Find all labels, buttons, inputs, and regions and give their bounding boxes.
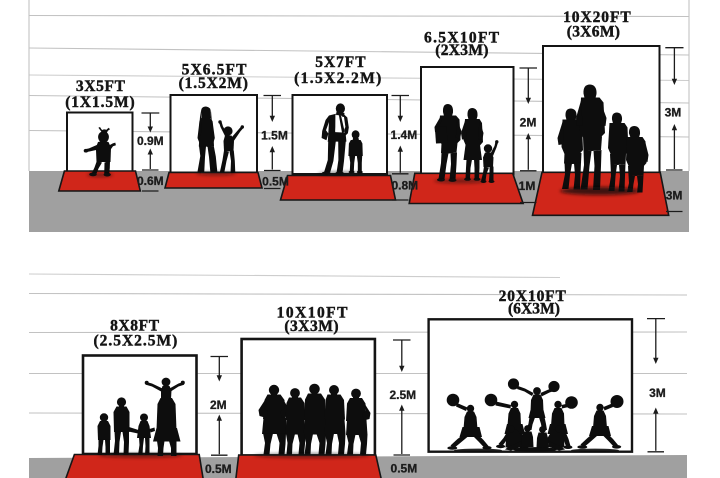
svg-text:1.4M: 1.4M — [391, 128, 418, 142]
svg-text:(3X6M): (3X6M) — [567, 23, 620, 40]
svg-text:2.5M: 2.5M — [389, 388, 416, 402]
svg-text:3M: 3M — [665, 106, 682, 120]
svg-text:0.5M: 0.5M — [205, 462, 232, 476]
svg-text:2M: 2M — [210, 398, 227, 412]
svg-text:1.5M: 1.5M — [261, 129, 288, 143]
svg-text:(1.5X2M): (1.5X2M) — [179, 75, 249, 92]
svg-text:0.5M: 0.5M — [391, 461, 418, 475]
svg-text:0.6M: 0.6M — [137, 174, 164, 188]
svg-text:(3X3M): (3X3M) — [284, 318, 339, 335]
svg-text:0.8M: 0.8M — [391, 179, 418, 193]
svg-text:(6X3M): (6X3M) — [508, 300, 560, 317]
svg-text:3M: 3M — [666, 189, 683, 203]
svg-text:(2.5X2.5M): (2.5X2.5M) — [94, 333, 179, 350]
svg-text:1M: 1M — [519, 179, 536, 193]
svg-text:(2X3M): (2X3M) — [435, 42, 488, 59]
svg-text:5X7FT: 5X7FT — [315, 54, 366, 71]
svg-text:0.5M: 0.5M — [262, 174, 289, 188]
svg-text:3M: 3M — [649, 386, 666, 400]
svg-text:(1X1.5M): (1X1.5M) — [65, 94, 135, 111]
svg-text:0.9M: 0.9M — [137, 134, 164, 148]
svg-text:3X5FT: 3X5FT — [76, 78, 126, 95]
svg-text:(1.5X2.2M): (1.5X2.2M) — [294, 70, 383, 87]
svg-text:2M: 2M — [520, 115, 537, 129]
